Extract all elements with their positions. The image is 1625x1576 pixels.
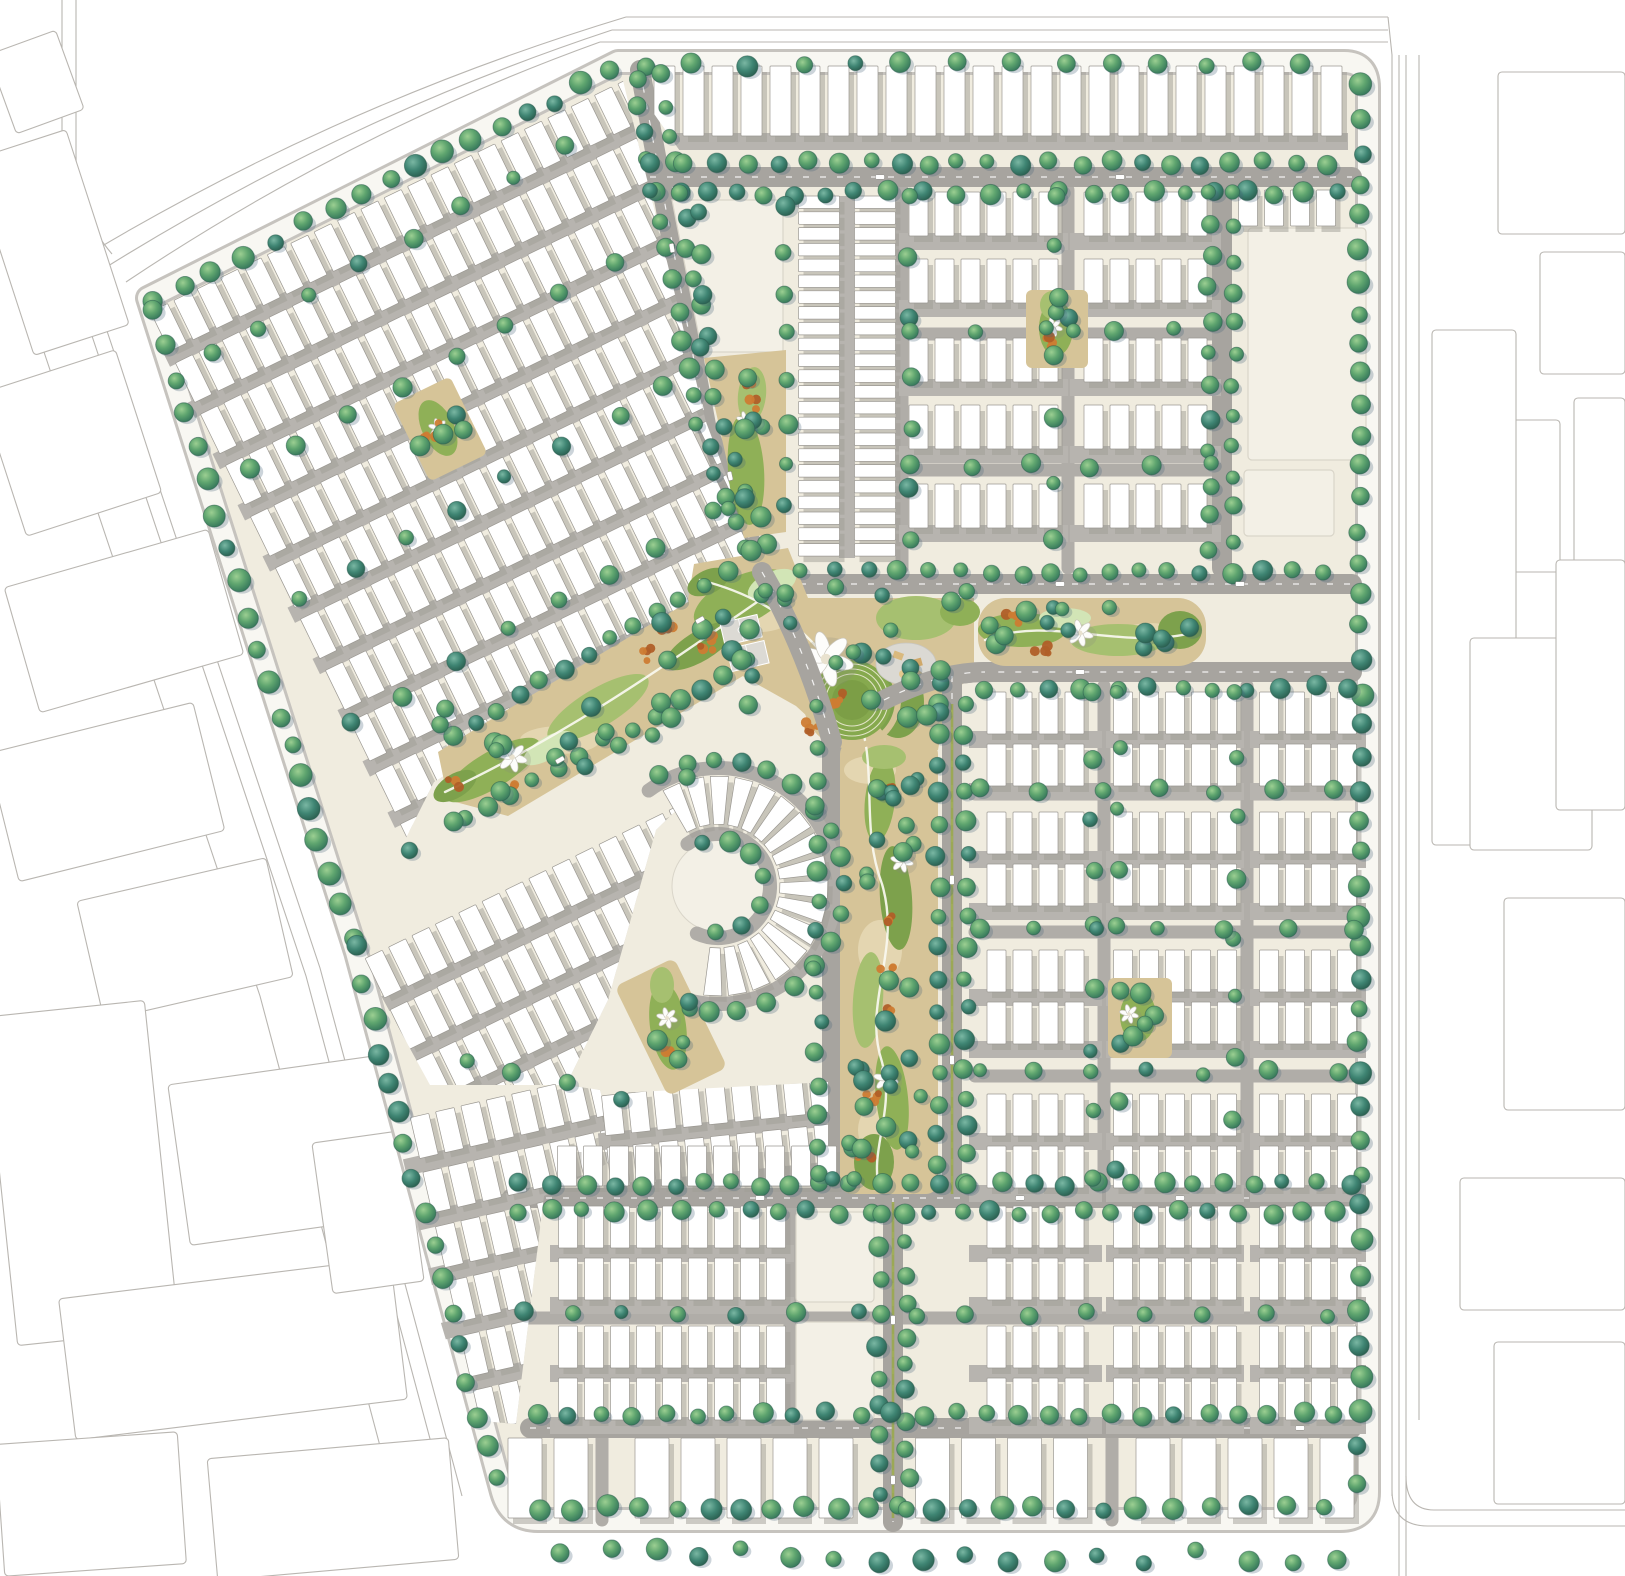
housing-plot xyxy=(855,401,896,414)
housing-plot xyxy=(1114,1326,1133,1368)
housing-plot xyxy=(1136,259,1155,303)
tree-icon xyxy=(285,737,301,753)
tree-icon xyxy=(1351,1131,1370,1150)
housing-plot xyxy=(855,433,896,446)
housing-plot xyxy=(1218,1326,1237,1368)
housing-plot xyxy=(987,338,1006,382)
tree-icon xyxy=(706,467,720,481)
tree-icon xyxy=(1265,186,1283,204)
tree-icon xyxy=(642,183,657,198)
tree-icon xyxy=(707,153,727,173)
tree-icon xyxy=(1350,334,1368,352)
housing-plot xyxy=(828,66,849,136)
tree-icon xyxy=(200,262,220,282)
tree-icon xyxy=(826,1551,842,1567)
housing-plot xyxy=(1002,66,1023,136)
housing-plot xyxy=(799,449,840,462)
tree-icon xyxy=(1215,1173,1233,1191)
tree-icon xyxy=(1132,563,1146,577)
tree-icon xyxy=(477,1435,498,1456)
tree-icon xyxy=(1108,918,1125,935)
tree-icon xyxy=(808,1105,827,1124)
tree-icon xyxy=(1084,750,1102,768)
tree-icon xyxy=(1039,321,1053,335)
tree-icon xyxy=(1192,566,1207,581)
housing-plot xyxy=(855,212,896,225)
tree-icon xyxy=(1057,55,1075,73)
tree-icon xyxy=(956,1306,973,1323)
tree-icon xyxy=(1201,505,1219,523)
tree-icon xyxy=(980,184,1000,204)
tree-icon xyxy=(779,324,794,339)
tree-icon xyxy=(628,97,646,115)
housing-plot xyxy=(855,275,896,288)
tree-icon xyxy=(670,592,685,607)
housing-plot xyxy=(799,417,840,430)
tree-icon xyxy=(289,764,312,787)
tree-icon xyxy=(1239,1495,1258,1514)
tree-icon xyxy=(898,1501,914,1517)
tree-icon xyxy=(1349,73,1372,96)
tree-icon xyxy=(751,507,771,527)
tree-icon xyxy=(755,187,772,204)
tree-icon xyxy=(388,1101,409,1122)
tree-icon xyxy=(612,407,629,424)
tree-icon xyxy=(1084,1044,1098,1058)
tree-icon xyxy=(1102,1404,1121,1423)
tree-icon xyxy=(1350,454,1370,474)
tree-icon xyxy=(488,703,504,719)
tree-icon xyxy=(1224,438,1239,453)
tree-icon xyxy=(752,1178,770,1196)
tree-icon xyxy=(947,186,965,204)
housing-plot xyxy=(1039,1094,1058,1136)
tree-icon xyxy=(1102,564,1118,580)
tree-icon xyxy=(1139,1062,1153,1076)
housing-plot xyxy=(1065,1326,1084,1368)
tree-icon xyxy=(326,198,347,219)
housing-plot xyxy=(855,512,896,525)
tree-icon xyxy=(1270,678,1290,698)
housing-plot xyxy=(741,1326,760,1368)
housing-plot xyxy=(944,66,965,136)
tree-icon xyxy=(898,817,914,833)
housing-plot xyxy=(799,338,840,351)
tree-icon xyxy=(1198,277,1216,295)
car xyxy=(1236,582,1245,587)
tree-icon xyxy=(404,154,426,176)
tree-icon xyxy=(1042,1206,1059,1223)
tree-icon xyxy=(1096,1503,1112,1519)
housing-plot xyxy=(1286,1326,1305,1368)
tree-icon xyxy=(690,1409,705,1424)
tree-icon xyxy=(1277,1496,1295,1514)
tree-icon xyxy=(864,153,879,168)
tree-icon xyxy=(1280,920,1298,938)
tree-icon xyxy=(174,403,193,422)
tree-icon xyxy=(248,641,265,658)
housing-plot xyxy=(1260,812,1279,854)
tree-icon xyxy=(1180,618,1198,636)
tree-icon xyxy=(949,1403,965,1419)
tree-icon xyxy=(661,708,681,728)
tree-icon xyxy=(1057,1500,1075,1518)
tree-icon xyxy=(1110,685,1123,698)
tree-icon xyxy=(1285,1555,1301,1571)
tree-icon xyxy=(957,878,975,896)
vacant-parcel xyxy=(1244,470,1334,536)
housing-plot xyxy=(799,212,840,225)
tree-icon xyxy=(1165,1407,1181,1423)
tree-icon xyxy=(1324,780,1342,798)
tree-icon xyxy=(645,728,660,743)
tree-icon xyxy=(685,271,701,287)
tree-icon xyxy=(550,284,567,301)
tree-icon xyxy=(885,790,901,806)
tree-icon xyxy=(1102,600,1116,614)
housing-plot xyxy=(1147,66,1168,136)
tree-icon xyxy=(728,1307,744,1323)
tree-icon xyxy=(1225,185,1240,200)
housing-plot xyxy=(1321,66,1342,136)
tree-icon xyxy=(881,1402,901,1422)
tree-icon xyxy=(958,1176,976,1194)
tree-icon xyxy=(1204,456,1219,471)
tree-icon xyxy=(1048,187,1065,204)
tree-icon xyxy=(456,1374,474,1392)
tree-icon xyxy=(368,1044,389,1065)
housing-plot xyxy=(799,496,840,509)
housing-plot xyxy=(855,322,896,335)
housing-plot xyxy=(1218,1002,1237,1044)
housing-plot xyxy=(689,1326,708,1368)
tree-icon xyxy=(915,1407,934,1426)
tree-icon xyxy=(961,846,976,861)
housing-plot xyxy=(1039,864,1058,906)
tree-icon xyxy=(680,993,697,1010)
housing-plot xyxy=(585,1326,604,1368)
tree-icon xyxy=(1254,152,1271,169)
context-building xyxy=(0,350,162,537)
housing-plot xyxy=(1140,1258,1159,1300)
tree-icon xyxy=(1294,1402,1314,1422)
housing-plot xyxy=(1114,812,1133,854)
tree-icon xyxy=(727,1001,746,1020)
housing-plot xyxy=(1286,1094,1305,1136)
housing-plot xyxy=(799,386,840,399)
housing-plot xyxy=(1260,1326,1279,1368)
housing-plot xyxy=(1338,744,1357,786)
tree-icon xyxy=(1085,979,1104,998)
housing-plot xyxy=(855,386,896,399)
tree-icon xyxy=(459,129,481,151)
car xyxy=(1016,1196,1025,1201)
tree-icon xyxy=(898,1267,915,1284)
context-building xyxy=(1574,398,1625,568)
housing-plot xyxy=(987,744,1006,786)
tree-icon xyxy=(510,1204,527,1221)
housing-plot xyxy=(770,66,791,136)
tree-icon xyxy=(594,1407,609,1422)
housing-plot xyxy=(1192,692,1211,734)
tree-icon xyxy=(1188,1542,1204,1558)
housing-plot xyxy=(799,275,840,288)
housing-plot xyxy=(1162,484,1181,528)
housing-plot xyxy=(1312,950,1331,992)
tree-icon xyxy=(783,616,797,630)
tree-icon xyxy=(1243,52,1262,71)
housing-plot xyxy=(855,544,896,557)
tree-icon xyxy=(970,919,989,938)
tree-icon xyxy=(1074,157,1092,175)
tree-icon xyxy=(497,470,510,483)
tree-icon xyxy=(1350,204,1370,224)
tree-icon xyxy=(926,846,945,865)
tree-icon xyxy=(793,563,807,577)
tree-icon xyxy=(1159,562,1175,578)
tree-icon xyxy=(1095,783,1111,799)
tree-icon xyxy=(606,253,624,271)
tree-icon xyxy=(530,671,547,688)
tree-icon xyxy=(1352,842,1369,859)
car xyxy=(1176,1196,1185,1201)
housing-plot xyxy=(1166,864,1185,906)
tree-icon xyxy=(454,421,472,439)
tree-icon xyxy=(1321,1310,1335,1324)
tree-icon xyxy=(708,924,724,940)
housing-block-ne-5 xyxy=(899,484,1068,542)
tree-icon xyxy=(228,569,251,592)
housing-plot xyxy=(1166,812,1185,854)
tree-icon xyxy=(646,538,665,557)
housing-plot xyxy=(559,1326,578,1368)
housing-plot xyxy=(683,66,704,136)
tree-icon xyxy=(1135,154,1151,170)
tree-icon xyxy=(729,184,745,200)
housing-plot xyxy=(1162,405,1181,449)
tree-icon xyxy=(1227,684,1242,699)
tree-icon xyxy=(1229,750,1244,765)
housing-plot xyxy=(1286,1002,1305,1044)
housing-plot xyxy=(799,480,840,493)
tree-icon xyxy=(714,666,733,685)
tree-icon xyxy=(460,1054,474,1068)
tree-icon xyxy=(1020,1307,1038,1325)
tree-icon xyxy=(410,436,430,456)
tree-icon xyxy=(699,1001,719,1021)
housing-plot xyxy=(799,528,840,541)
tree-icon xyxy=(964,459,981,476)
housing-plot xyxy=(1039,1326,1058,1368)
tree-icon xyxy=(258,671,281,694)
tree-icon xyxy=(560,732,578,750)
tree-icon xyxy=(883,1079,897,1093)
tree-icon xyxy=(1110,802,1123,815)
tree-icon xyxy=(1347,1300,1369,1322)
tree-icon xyxy=(1185,1176,1201,1192)
tree-icon xyxy=(604,1202,624,1222)
housing-plot xyxy=(559,1258,578,1300)
housing-plot xyxy=(987,1094,1006,1136)
tree-icon xyxy=(848,56,863,71)
tree-icon xyxy=(671,185,687,201)
tree-icon xyxy=(1354,146,1371,163)
tree-icon xyxy=(957,1547,973,1563)
housing-plot xyxy=(1065,1094,1084,1136)
tree-icon xyxy=(625,723,640,738)
tree-icon xyxy=(914,1089,927,1102)
tree-icon xyxy=(451,1336,468,1353)
tree-icon xyxy=(1348,1437,1366,1455)
housing-plot xyxy=(1260,1258,1279,1300)
tree-icon xyxy=(898,1329,916,1347)
tree-icon xyxy=(671,331,691,351)
tree-icon xyxy=(467,1408,487,1428)
housing-plot xyxy=(1136,338,1155,382)
tree-icon xyxy=(1330,184,1346,200)
housing-plot xyxy=(689,1258,708,1300)
housing-plot xyxy=(767,1258,786,1300)
tree-icon xyxy=(1350,782,1370,802)
tree-icon xyxy=(1055,602,1069,616)
tree-icon xyxy=(793,1496,814,1517)
tree-icon xyxy=(846,645,861,660)
tree-icon xyxy=(433,1268,454,1289)
tree-icon xyxy=(1351,1001,1367,1017)
tree-icon xyxy=(1350,811,1369,830)
housing-plot xyxy=(987,259,1006,303)
tree-icon xyxy=(1104,321,1123,340)
tree-icon xyxy=(692,245,711,264)
housing-plot xyxy=(1260,864,1279,906)
housing-plot xyxy=(1286,812,1305,854)
tree-icon xyxy=(823,823,839,839)
housing-plot xyxy=(1110,259,1129,303)
tree-icon xyxy=(681,53,701,73)
tree-icon xyxy=(923,1499,945,1521)
housing-plot xyxy=(767,1326,786,1368)
tree-icon xyxy=(845,182,862,199)
tree-icon xyxy=(869,1237,889,1257)
tree-icon xyxy=(1178,186,1192,200)
housing-plot xyxy=(855,259,896,272)
tree-icon xyxy=(1066,324,1080,338)
tree-icon xyxy=(862,562,877,577)
housing-plot xyxy=(1136,484,1155,528)
tree-icon xyxy=(799,151,817,169)
tree-icon xyxy=(1284,562,1300,578)
tree-icon xyxy=(493,118,511,136)
tree-icon xyxy=(1325,1201,1346,1222)
housing-plot xyxy=(855,496,896,509)
tree-icon xyxy=(816,1402,834,1420)
context-building xyxy=(0,702,225,881)
tree-icon xyxy=(556,136,574,154)
housing-plot xyxy=(1140,864,1159,906)
tree-icon xyxy=(542,1176,561,1195)
tree-icon xyxy=(1328,1550,1347,1569)
tree-icon xyxy=(600,61,619,80)
tree-icon xyxy=(692,619,712,639)
housing-plot xyxy=(1286,864,1305,906)
tree-icon xyxy=(658,1405,675,1422)
tree-icon xyxy=(1352,427,1371,446)
tree-icon xyxy=(875,588,890,603)
context-building xyxy=(1504,898,1625,1110)
housing-plot xyxy=(799,66,820,136)
tree-icon xyxy=(930,971,947,988)
tree-icon xyxy=(808,922,824,938)
context-building xyxy=(77,858,293,1021)
tree-icon xyxy=(1196,1068,1210,1082)
tree-icon xyxy=(489,743,504,758)
tree-icon xyxy=(876,649,892,665)
tree-icon xyxy=(197,468,219,490)
tree-icon xyxy=(1083,1064,1098,1079)
tree-icon xyxy=(833,906,849,922)
tree-icon xyxy=(758,583,773,598)
housing-plot xyxy=(585,1258,604,1300)
tree-icon xyxy=(640,153,659,172)
tree-icon xyxy=(272,709,290,727)
tree-icon xyxy=(1162,156,1181,175)
tree-icon xyxy=(853,1407,870,1424)
tree-icon xyxy=(719,1406,734,1421)
tree-icon xyxy=(809,1139,825,1155)
tree-icon xyxy=(1047,476,1061,490)
housing-plot xyxy=(1166,1094,1185,1136)
tree-icon xyxy=(705,360,724,379)
tree-icon xyxy=(347,935,367,955)
tree-icon xyxy=(497,317,513,333)
housing-plot xyxy=(1286,744,1305,786)
tree-icon xyxy=(1080,459,1098,477)
housing-plot xyxy=(1084,484,1103,528)
tree-icon xyxy=(1351,1228,1373,1250)
tree-icon xyxy=(286,436,305,455)
tree-icon xyxy=(294,212,313,231)
tree-icon xyxy=(574,1202,589,1217)
tree-icon xyxy=(743,1201,759,1217)
tree-icon xyxy=(352,975,370,993)
tree-icon xyxy=(402,1169,420,1187)
housing-plot xyxy=(1218,950,1237,992)
tree-icon xyxy=(1349,1336,1369,1356)
tree-icon xyxy=(1353,748,1372,767)
tree-icon xyxy=(347,560,365,578)
tree-icon xyxy=(672,1200,691,1219)
tree-icon xyxy=(342,713,360,731)
housing-block-north-column xyxy=(799,196,901,562)
tree-icon xyxy=(431,140,454,163)
tree-icon xyxy=(896,1380,914,1398)
tree-icon xyxy=(899,478,918,497)
tree-icon xyxy=(931,878,950,897)
tree-icon xyxy=(1010,155,1030,175)
housing-plot xyxy=(855,449,896,462)
tree-icon xyxy=(741,540,762,561)
tree-icon xyxy=(393,378,412,397)
tree-icon xyxy=(873,1272,889,1288)
tree-icon xyxy=(1012,1207,1026,1221)
housing-plot xyxy=(799,291,840,304)
tree-icon xyxy=(948,52,966,70)
tree-icon xyxy=(600,565,619,584)
tree-icon xyxy=(909,1308,925,1324)
tree-icon xyxy=(578,1176,597,1195)
housing-plot xyxy=(855,307,896,320)
housing-plot xyxy=(1218,744,1237,786)
